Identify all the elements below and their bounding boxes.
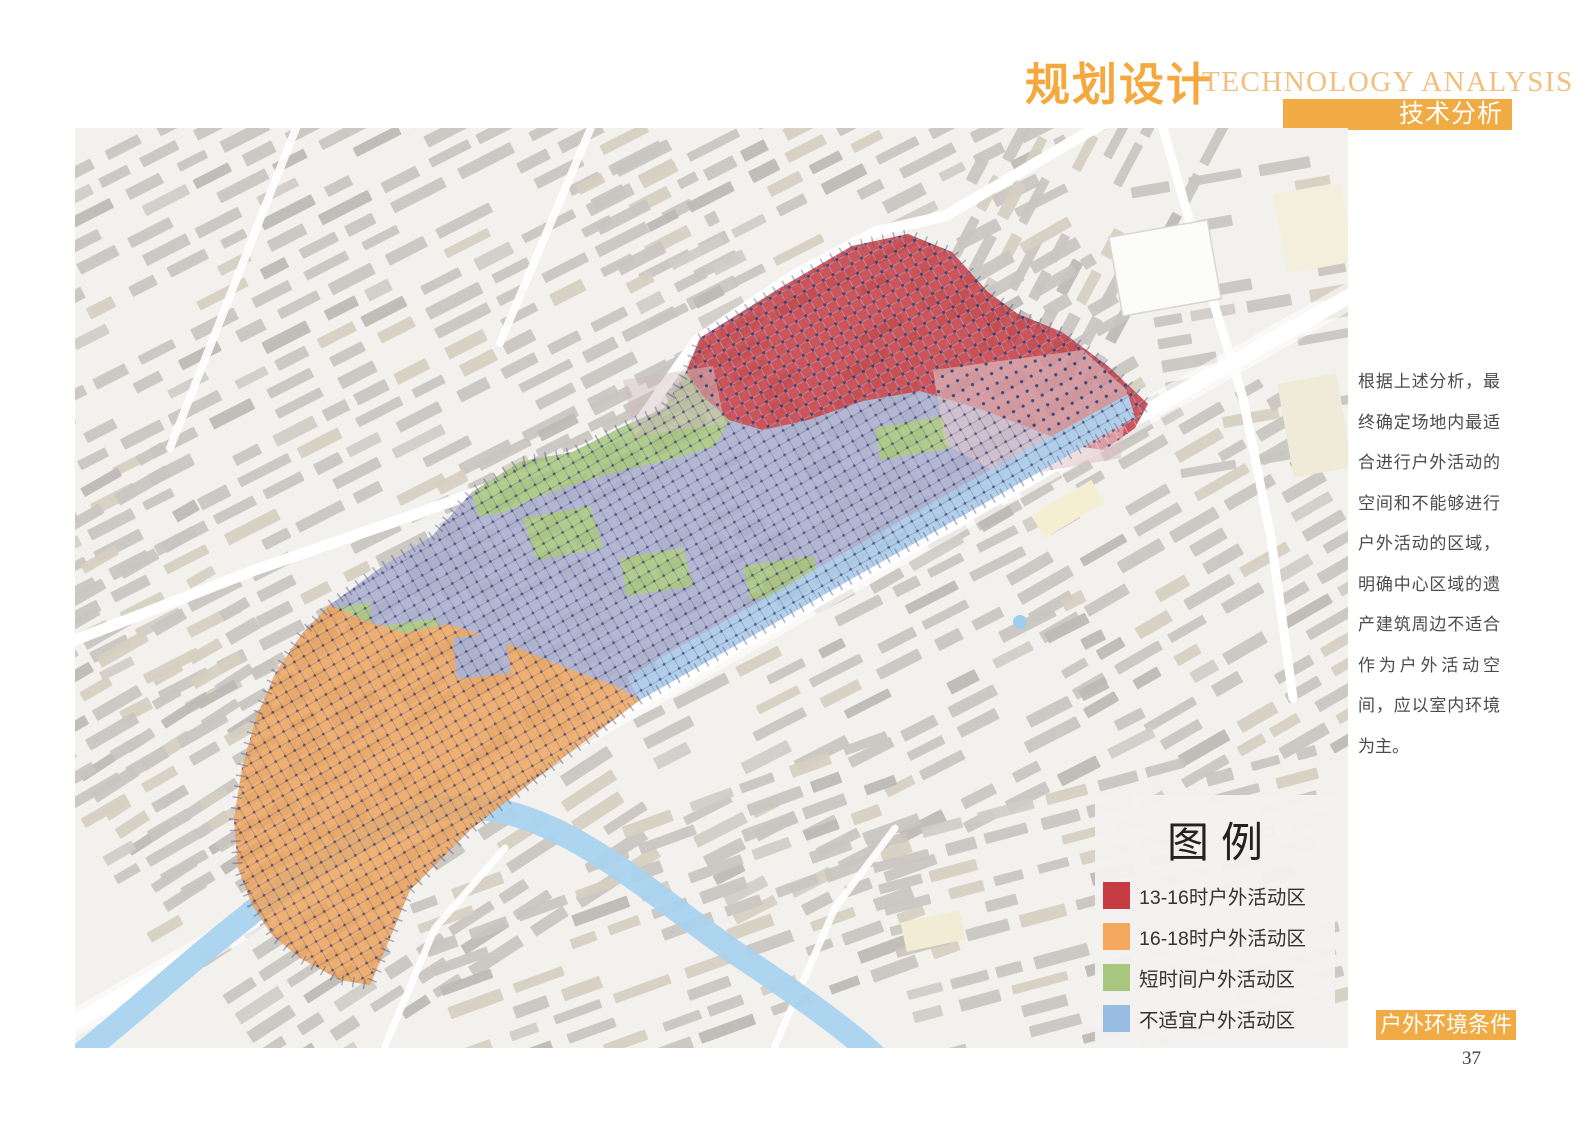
landmark-cream-block: [1274, 183, 1348, 274]
page: { "page": { "page_number": "37" }, "head…: [0, 0, 1587, 1122]
legend-swatch-blue: [1103, 1005, 1130, 1032]
page-subtitle-en: TECHNOLOGY ANALYSIS: [1202, 66, 1574, 99]
legend-swatch-red: [1103, 882, 1130, 909]
pond: [1013, 615, 1027, 629]
legend-label: 13-16时户外活动区: [1139, 881, 1306, 910]
analysis-map: 图例 13-16时户外活动区 16-18时户外活动区 短时间户外活动区 不适宜户…: [75, 128, 1348, 1048]
legend-label: 不适宜户外活动区: [1139, 1004, 1295, 1033]
footer-tag: 户外环境条件: [1376, 1010, 1516, 1040]
legend-item: 不适宜户外活动区: [1103, 1005, 1335, 1032]
legend-item: 16-18时户外活动区: [1103, 923, 1335, 950]
page-number: 37: [1462, 1048, 1481, 1070]
map-legend: 图例 13-16时户外活动区 16-18时户外活动区 短时间户外活动区 不适宜户…: [1095, 795, 1335, 1048]
legend-swatch-green: [1103, 964, 1130, 991]
legend-item: 短时间户外活动区: [1103, 964, 1335, 991]
legend-label: 16-18时户外活动区: [1139, 922, 1306, 951]
legend-title: 图例: [1095, 809, 1335, 870]
legend-label: 短时间户外活动区: [1139, 963, 1295, 992]
legend-item: 13-16时户外活动区: [1103, 882, 1335, 909]
annotation-paragraph: 根据上述分析，最终确定场地内最适合进行户外活动的空间和不能够进行户外活动的区域，…: [1358, 362, 1500, 767]
landmark-white-block: [1109, 220, 1221, 316]
landmark-cream-block: [1277, 374, 1348, 478]
legend-swatch-orange: [1103, 923, 1130, 950]
page-title: 规划设计: [1025, 48, 1213, 113]
section-tab: 技术分析: [1283, 99, 1512, 130]
